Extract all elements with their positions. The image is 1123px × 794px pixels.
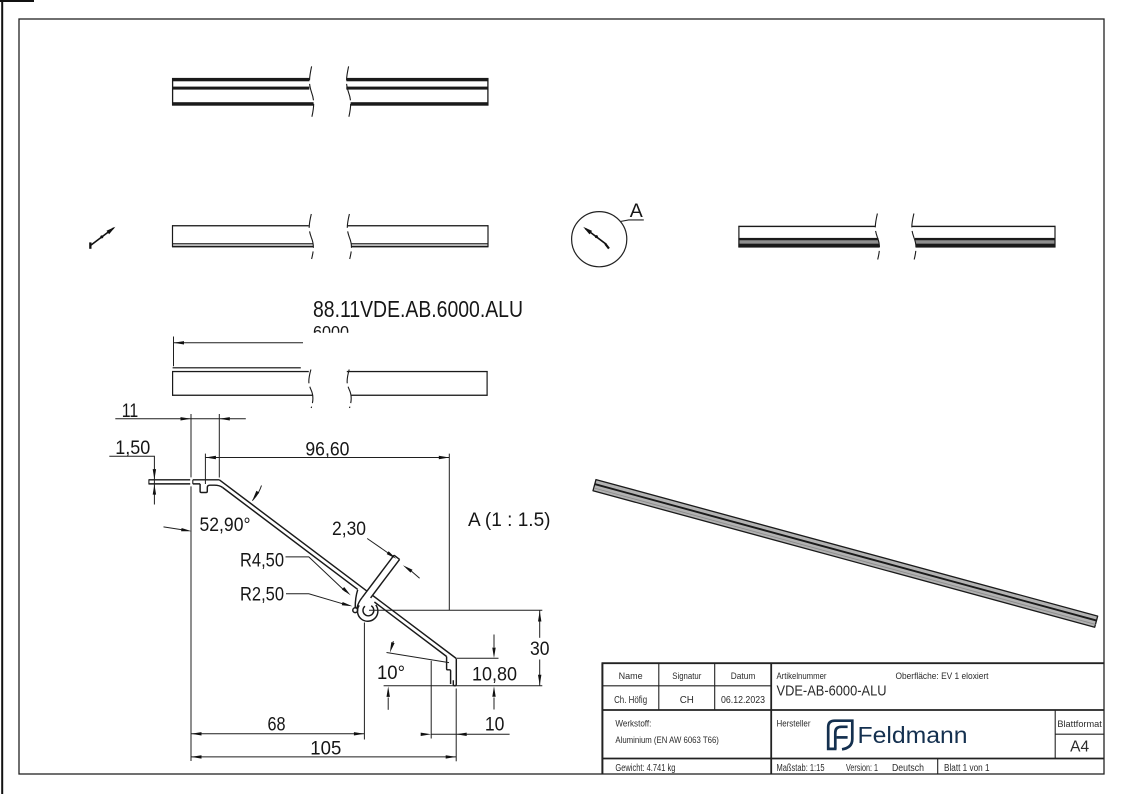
svg-text:Maßstab: 1:15: Maßstab: 1:15	[777, 763, 825, 774]
svg-text:1,50: 1,50	[115, 438, 150, 459]
svg-text:10°: 10°	[377, 663, 405, 684]
svg-text:Werkstoff:: Werkstoff:	[615, 719, 651, 729]
svg-text:R4,50: R4,50	[240, 551, 284, 572]
svg-text:Feldmann: Feldmann	[858, 722, 968, 748]
svg-text:52,90°: 52,90°	[200, 515, 251, 536]
svg-text:68: 68	[268, 715, 286, 736]
svg-text:A4: A4	[1070, 739, 1089, 756]
svg-text:Version: 1: Version: 1	[846, 763, 878, 774]
svg-text:Gewicht: 4.741 kg: Gewicht: 4.741 kg	[615, 763, 675, 774]
svg-text:Blatt 1 von 1: Blatt 1 von 1	[944, 763, 990, 774]
svg-text:Ch. Höfig: Ch. Höfig	[614, 695, 647, 706]
svg-text:Deutsch: Deutsch	[892, 763, 924, 774]
svg-text:Name: Name	[619, 671, 643, 681]
svg-text:Oberfläche: EV 1 eloxiert: Oberfläche: EV 1 eloxiert	[896, 671, 989, 681]
svg-text:30: 30	[530, 639, 550, 660]
svg-text:Aluminium (EN AW 6063 T66): Aluminium (EN AW 6063 T66)	[615, 735, 719, 745]
svg-text:96,60: 96,60	[305, 440, 349, 461]
svg-text:105: 105	[310, 739, 341, 760]
svg-text:11: 11	[122, 401, 139, 422]
svg-text:CH: CH	[680, 695, 694, 706]
svg-text:A (1 : 1.5): A (1 : 1.5)	[468, 510, 551, 531]
svg-text:VDE-AB-6000-ALU: VDE-AB-6000-ALU	[777, 683, 887, 700]
svg-text:06.12.2023: 06.12.2023	[721, 695, 765, 706]
svg-text:Hersteller: Hersteller	[777, 719, 811, 729]
svg-text:10: 10	[485, 715, 505, 736]
svg-text:Signatur: Signatur	[672, 671, 701, 681]
svg-text:Datum: Datum	[731, 671, 756, 681]
svg-text:A: A	[630, 200, 643, 222]
svg-text:Blattformat: Blattformat	[1057, 719, 1102, 729]
svg-text:R2,50: R2,50	[240, 585, 284, 606]
svg-text:2,30: 2,30	[332, 519, 366, 540]
svg-text:10,80: 10,80	[472, 665, 517, 686]
svg-text:Artikelnummer: Artikelnummer	[777, 671, 827, 681]
svg-text:88.11VDE.AB.6000.ALU: 88.11VDE.AB.6000.ALU	[313, 296, 523, 322]
